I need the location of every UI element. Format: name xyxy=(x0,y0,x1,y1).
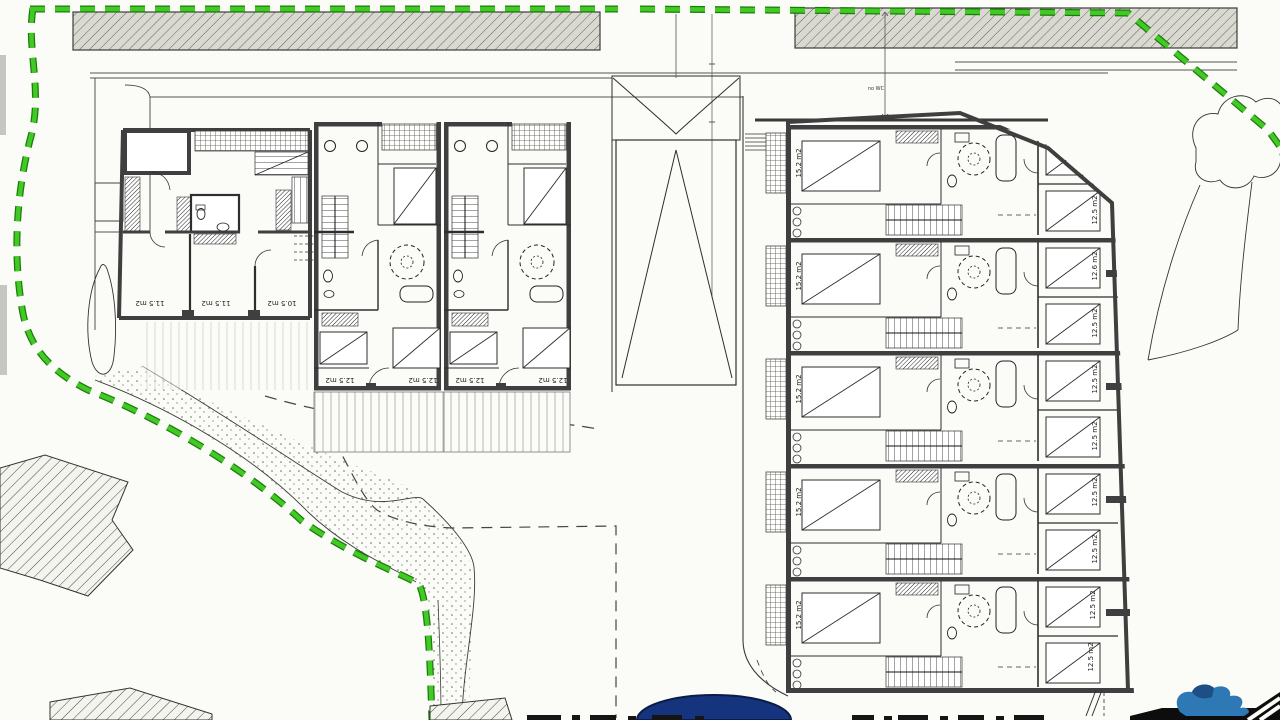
road-hatch-left xyxy=(73,12,600,50)
wardrobe xyxy=(194,234,236,244)
garage-room xyxy=(125,131,189,173)
room-label: 12.5 m2 xyxy=(1090,469,1100,515)
door-arc xyxy=(255,250,271,266)
room-label: 12.5 m2 xyxy=(1086,634,1096,680)
site-plan-canvas: 11.5 m2 11.5 m2 10.5 m2 12.5 m2 12.5 m2 … xyxy=(0,0,1280,720)
room-label: 15.2 m2 xyxy=(794,253,804,299)
room-label: 12.6 m2 xyxy=(1090,243,1100,289)
scan-artifact xyxy=(0,285,7,375)
room-label: 12.5 m2 xyxy=(1088,582,1098,628)
gate-arc xyxy=(125,85,150,97)
room-label: 11.5 m2 xyxy=(193,298,239,308)
hedge xyxy=(88,265,116,375)
patio xyxy=(140,322,310,390)
balcony xyxy=(195,131,308,151)
room-label: 11.5 m2 xyxy=(127,298,173,308)
porch xyxy=(95,183,123,221)
room-label: 15.2 m2 xyxy=(794,140,804,186)
room-label: 12.5 m2 xyxy=(1090,300,1100,346)
apartment-building xyxy=(766,125,1134,693)
car-ramp xyxy=(612,14,790,392)
exterior-stair xyxy=(1086,690,1102,716)
existing-building xyxy=(50,688,212,720)
wardrobe xyxy=(125,177,140,232)
door-arc xyxy=(150,232,165,247)
tree-branches xyxy=(1148,182,1252,360)
wardrobe xyxy=(276,190,291,230)
patio xyxy=(314,392,570,452)
room-label: 12.5 m2 xyxy=(317,375,363,385)
house-a xyxy=(95,130,314,318)
room-label: 15.2 m2 xyxy=(794,592,804,638)
bathroom xyxy=(191,195,239,232)
room-label: 12.5 m2 xyxy=(1090,526,1100,572)
room-label: 15.2 m2 xyxy=(794,479,804,525)
room-label: 12.5 m2 xyxy=(447,375,493,385)
tree-canopy xyxy=(1193,96,1280,188)
room-label: 12.5 m2 xyxy=(1090,413,1100,459)
room-label: 15.2 m2 xyxy=(794,366,804,412)
house-b xyxy=(314,122,441,391)
room-label: 12.5 m2 xyxy=(1090,187,1100,233)
room-label: 12.5 m2 xyxy=(530,375,576,385)
existing-building xyxy=(0,455,133,596)
room-label: 12.5 m2 xyxy=(1090,356,1100,402)
stairs xyxy=(292,177,308,223)
logo-watermark xyxy=(1130,685,1280,720)
scan-artifact xyxy=(0,55,6,135)
house-c xyxy=(444,122,571,391)
wc-note: no WC xyxy=(856,84,896,94)
room-label: 12.5 m2 xyxy=(400,375,446,385)
room-label: 10.5 m2 xyxy=(259,298,305,308)
wardrobe xyxy=(177,197,192,232)
